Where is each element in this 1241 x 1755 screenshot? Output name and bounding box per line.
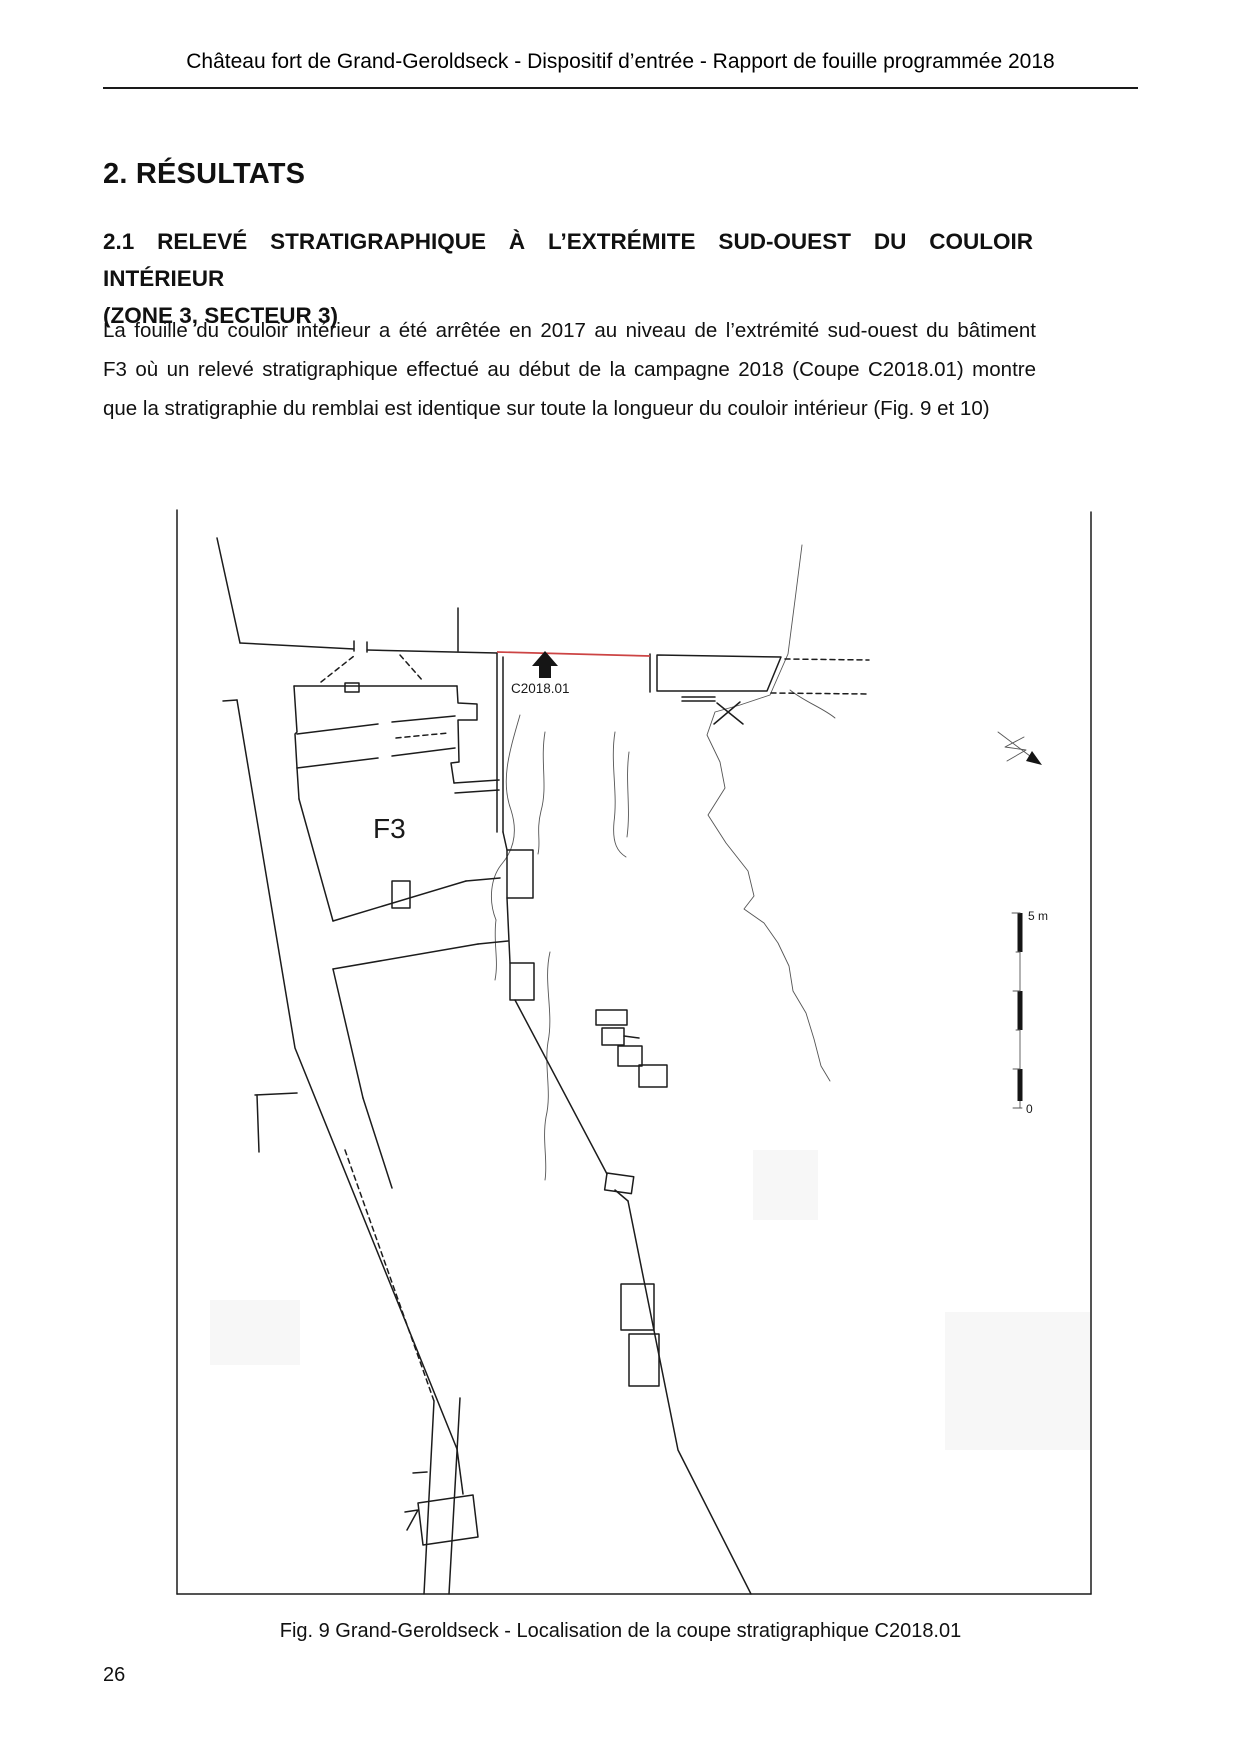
section-title: 2. RÉSULTATS: [103, 158, 305, 191]
figure-caption: Fig. 9 Grand-Geroldseck - Localisation d…: [0, 1620, 1241, 1643]
header-rule: [103, 87, 1138, 89]
body-paragraph: La fouille du couloir intérieur a été ar…: [103, 311, 1036, 428]
scale-top-label: 5 m: [1028, 909, 1048, 923]
section-cut-line: [497, 652, 650, 656]
page-header: Château fort de Grand-Geroldseck - Dispo…: [0, 47, 1241, 77]
plan-walls: [217, 538, 869, 1594]
scan-shading: [210, 1150, 1090, 1450]
rock-contours: [491, 545, 835, 1180]
paragraph-line-3: que la stratigraphie du remblai est iden…: [103, 389, 1036, 428]
scale-zero-label: 0: [1026, 1102, 1033, 1116]
paragraph-line-2: F3 où un relevé stratigraphique effectué…: [103, 350, 1036, 389]
section-cut-marker: C2018.01: [511, 651, 570, 696]
section-cut-label: C2018.01: [511, 681, 570, 696]
page-number: 26: [103, 1664, 125, 1687]
scale-bar: 5 m 0: [1012, 909, 1048, 1116]
building-f3-label: F3: [373, 813, 406, 844]
paragraph-line-1: La fouille du couloir intérieur a été ar…: [103, 311, 1036, 350]
figure-9-plan: C2018.01 F3 5 m 0: [155, 450, 1095, 1595]
site-plan-drawing: C2018.01 F3 5 m 0: [155, 450, 1095, 1595]
north-arrow-icon: [998, 732, 1042, 765]
report-page: Château fort de Grand-Geroldseck - Dispo…: [0, 0, 1241, 1755]
subsection-line-1: 2.1 RELEVÉ STRATIGRAPHIQUE À L’EXTRÉMITE…: [103, 223, 1033, 297]
